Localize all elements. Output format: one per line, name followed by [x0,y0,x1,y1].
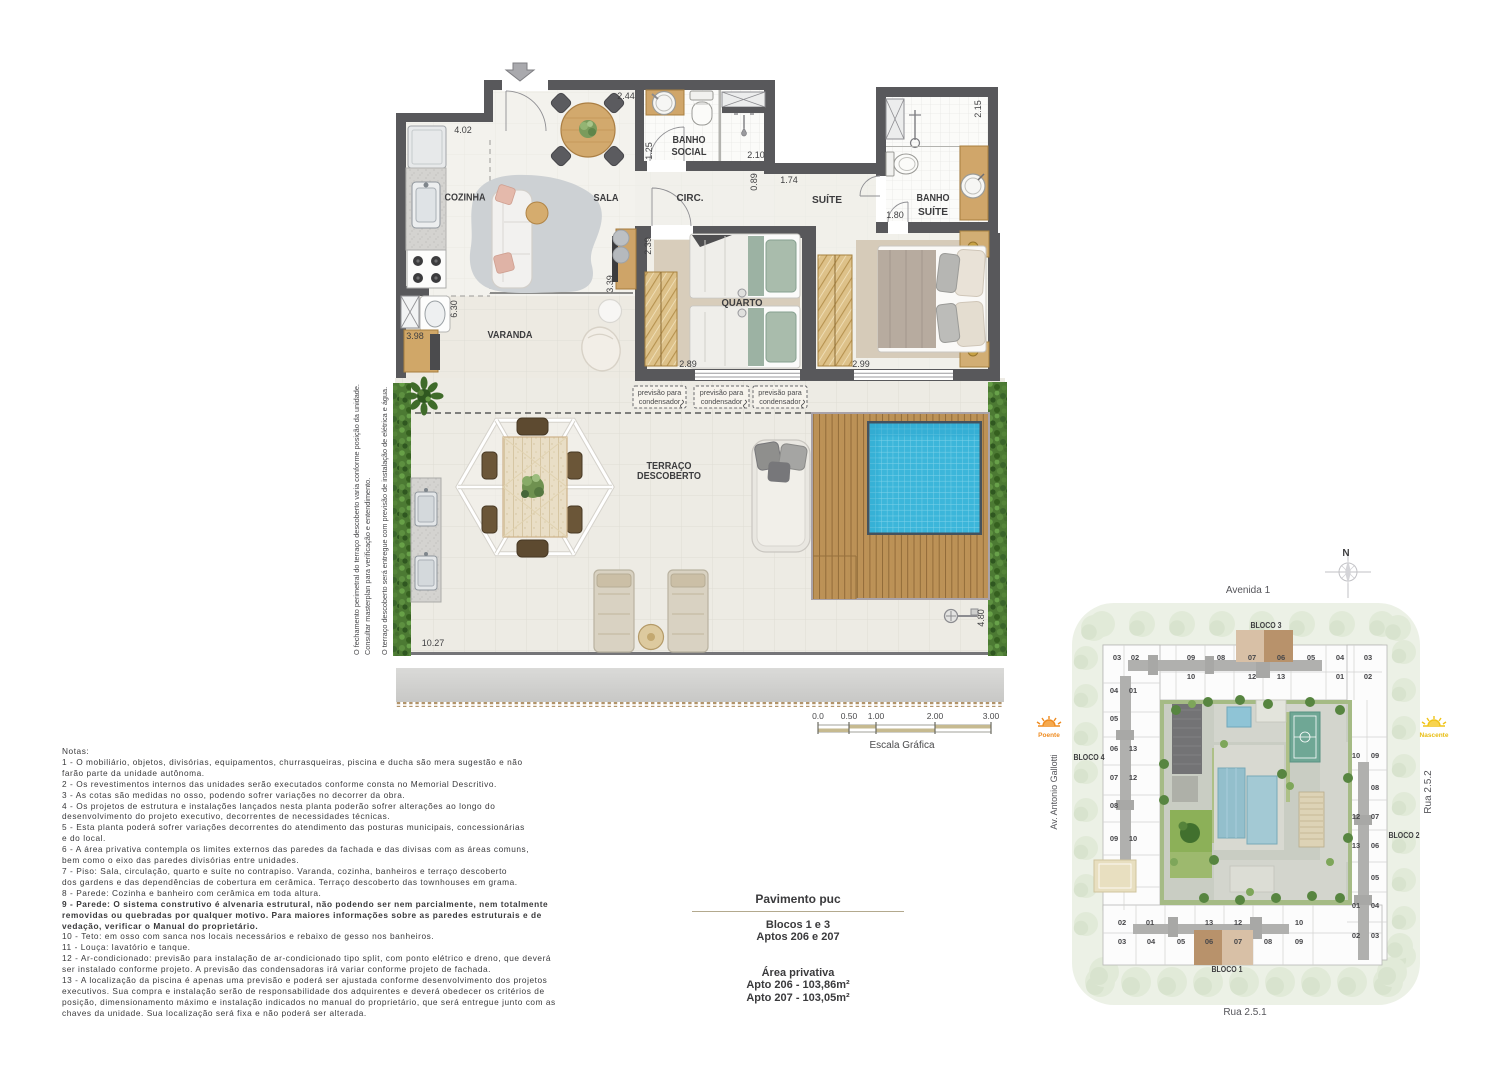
svg-text:0.50: 0.50 [841,711,858,721]
svg-text:13: 13 [1129,744,1137,753]
svg-text:06: 06 [1205,937,1213,946]
svg-text:09: 09 [1110,834,1118,843]
svg-text:BANHO: BANHO [917,193,950,204]
svg-text:09: 09 [1371,751,1379,760]
svg-text:3.00: 3.00 [983,711,1000,721]
svg-text:N: N [1342,548,1349,559]
svg-text:02: 02 [1131,653,1139,662]
svg-text:VARANDA: VARANDA [488,330,533,341]
svg-text:Av. Antonio Gallotti: Av. Antonio Gallotti [1049,754,1059,829]
svg-text:13: 13 [1352,841,1360,850]
svg-text:12: 12 [1234,918,1242,927]
svg-text:2.39: 2.39 [643,237,653,255]
svg-text:05: 05 [1110,714,1118,723]
svg-text:DESCOBERTO: DESCOBERTO [637,471,701,482]
svg-text:previsão para: previsão para [638,388,682,397]
svg-text:6.30: 6.30 [449,300,459,318]
svg-text:BLOCO 2: BLOCO 2 [1389,830,1420,840]
svg-text:3.98: 3.98 [406,331,424,341]
svg-text:03: 03 [1118,937,1126,946]
svg-text:O terraço descoberto será entr: O terraço descoberto será entregue com p… [380,387,389,655]
svg-text:1.00: 1.00 [868,711,885,721]
svg-text:01: 01 [1129,686,1137,695]
svg-text:06: 06 [1371,841,1379,850]
svg-text:08: 08 [1264,937,1272,946]
svg-text:Avenida 1: Avenida 1 [1226,585,1271,596]
svg-text:10: 10 [1352,751,1360,760]
svg-text:0.0: 0.0 [812,711,824,721]
svg-text:BANHO: BANHO [673,135,706,146]
svg-text:10.27: 10.27 [422,638,445,648]
svg-text:2.99: 2.99 [852,359,870,369]
svg-text:04: 04 [1110,686,1119,695]
svg-text:2.44: 2.44 [617,91,635,101]
svg-text:07: 07 [1234,937,1242,946]
svg-text:06: 06 [1110,744,1118,753]
svg-text:2.00: 2.00 [927,711,944,721]
svg-text:BLOCO 4: BLOCO 4 [1074,752,1105,762]
svg-text:12: 12 [1129,773,1137,782]
svg-text:SUÍTE: SUÍTE [918,205,948,218]
svg-text:Nascente: Nascente [1420,732,1449,739]
svg-text:01: 01 [1336,672,1344,681]
svg-text:previsão para: previsão para [700,388,744,397]
svg-text:10: 10 [1129,834,1137,843]
svg-text:previsão para: previsão para [758,388,802,397]
svg-text:09: 09 [1295,937,1303,946]
svg-text:Consultar masterplan para veri: Consultar masterplan para verificação e … [363,478,372,655]
svg-text:12: 12 [1248,672,1256,681]
svg-text:09: 09 [1187,653,1195,662]
svg-text:BLOCO 1: BLOCO 1 [1212,964,1243,974]
svg-text:04: 04 [1371,901,1380,910]
svg-text:07: 07 [1110,773,1118,782]
svg-text:Rua 2.5.1: Rua 2.5.1 [1223,1007,1267,1018]
svg-text:0.89: 0.89 [749,173,759,191]
svg-text:12: 12 [1352,812,1360,821]
svg-text:03: 03 [1371,931,1379,940]
svg-text:2.89: 2.89 [679,359,697,369]
svg-text:CIRC.: CIRC. [677,193,704,204]
svg-text:04: 04 [1336,653,1345,662]
svg-text:QUARTO: QUARTO [722,298,763,309]
svg-text:05: 05 [1307,653,1315,662]
svg-text:SALA: SALA [594,193,619,204]
svg-text:2.15: 2.15 [973,100,983,118]
svg-text:3.39: 3.39 [605,275,615,293]
svg-text:condensador: condensador [639,397,681,406]
svg-text:07: 07 [1371,812,1379,821]
svg-text:COZINHA: COZINHA [445,193,486,204]
svg-text:1.25: 1.25 [644,142,654,160]
svg-text:10: 10 [1295,918,1303,927]
svg-text:03: 03 [1113,653,1121,662]
svg-text:02: 02 [1118,918,1126,927]
svg-text:08: 08 [1110,801,1118,810]
svg-text:BLOCO 3: BLOCO 3 [1251,620,1282,630]
svg-text:SOCIAL: SOCIAL [672,147,707,158]
svg-text:04: 04 [1147,937,1156,946]
svg-text:1.74: 1.74 [780,175,798,185]
svg-text:02: 02 [1364,672,1372,681]
svg-text:05: 05 [1177,937,1185,946]
svg-text:SUÍTE: SUÍTE [812,193,842,206]
svg-text:08: 08 [1217,653,1225,662]
svg-text:01: 01 [1146,918,1154,927]
svg-text:1.80: 1.80 [886,210,904,220]
svg-text:08: 08 [1371,783,1379,792]
svg-text:06: 06 [1277,653,1285,662]
svg-text:03: 03 [1364,653,1372,662]
svg-text:02: 02 [1352,931,1360,940]
svg-text:07: 07 [1248,653,1256,662]
svg-text:01: 01 [1352,901,1360,910]
svg-text:13: 13 [1205,918,1213,927]
svg-text:05: 05 [1371,873,1379,882]
svg-text:condensador: condensador [701,397,743,406]
svg-text:Poente: Poente [1038,732,1060,739]
svg-text:Rua 2.5.2: Rua 2.5.2 [1423,770,1434,814]
svg-text:Escala Gráfica: Escala Gráfica [869,740,934,751]
svg-text:10: 10 [1187,672,1195,681]
svg-text:13: 13 [1277,672,1285,681]
svg-text:4.02: 4.02 [454,125,472,135]
svg-text:O fechamento perimetral do ter: O fechamento perimetral do terraço desco… [352,384,361,655]
svg-text:2.10: 2.10 [747,150,765,160]
svg-text:condensador: condensador [759,397,801,406]
svg-text:4.80: 4.80 [976,609,986,627]
